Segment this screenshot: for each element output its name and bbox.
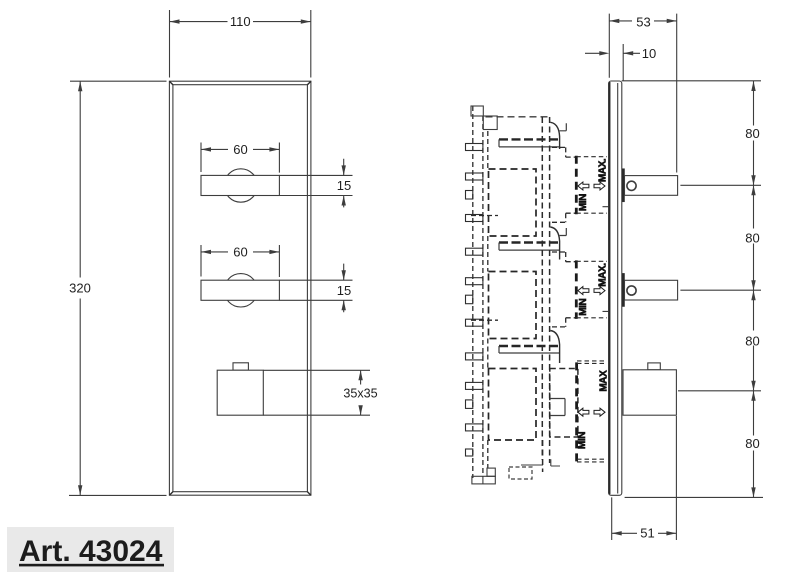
svg-text:10: 10 [642, 46, 656, 61]
svg-text:320: 320 [69, 281, 91, 296]
svg-text:15: 15 [337, 283, 351, 298]
svg-text:51: 51 [640, 526, 654, 541]
svg-text:15: 15 [337, 178, 351, 193]
svg-text:110: 110 [230, 14, 251, 29]
svg-text:53: 53 [636, 15, 650, 30]
svg-text:Art. 43024: Art. 43024 [19, 535, 163, 568]
svg-text:80: 80 [745, 231, 759, 246]
svg-text:MAX.: MAX. [597, 263, 608, 287]
svg-text:35x35: 35x35 [343, 387, 377, 401]
svg-text:80: 80 [745, 436, 759, 451]
svg-text:80: 80 [745, 333, 759, 348]
svg-text:60: 60 [233, 142, 247, 157]
svg-text:MIN: MIN [578, 194, 589, 211]
svg-text:80: 80 [745, 126, 759, 141]
svg-text:60: 60 [233, 244, 247, 259]
svg-text:MIN: MIN [578, 298, 589, 315]
svg-text:MAX.: MAX. [597, 158, 608, 182]
svg-text:MAX: MAX [598, 370, 609, 392]
svg-text:MIN: MIN [577, 432, 588, 449]
